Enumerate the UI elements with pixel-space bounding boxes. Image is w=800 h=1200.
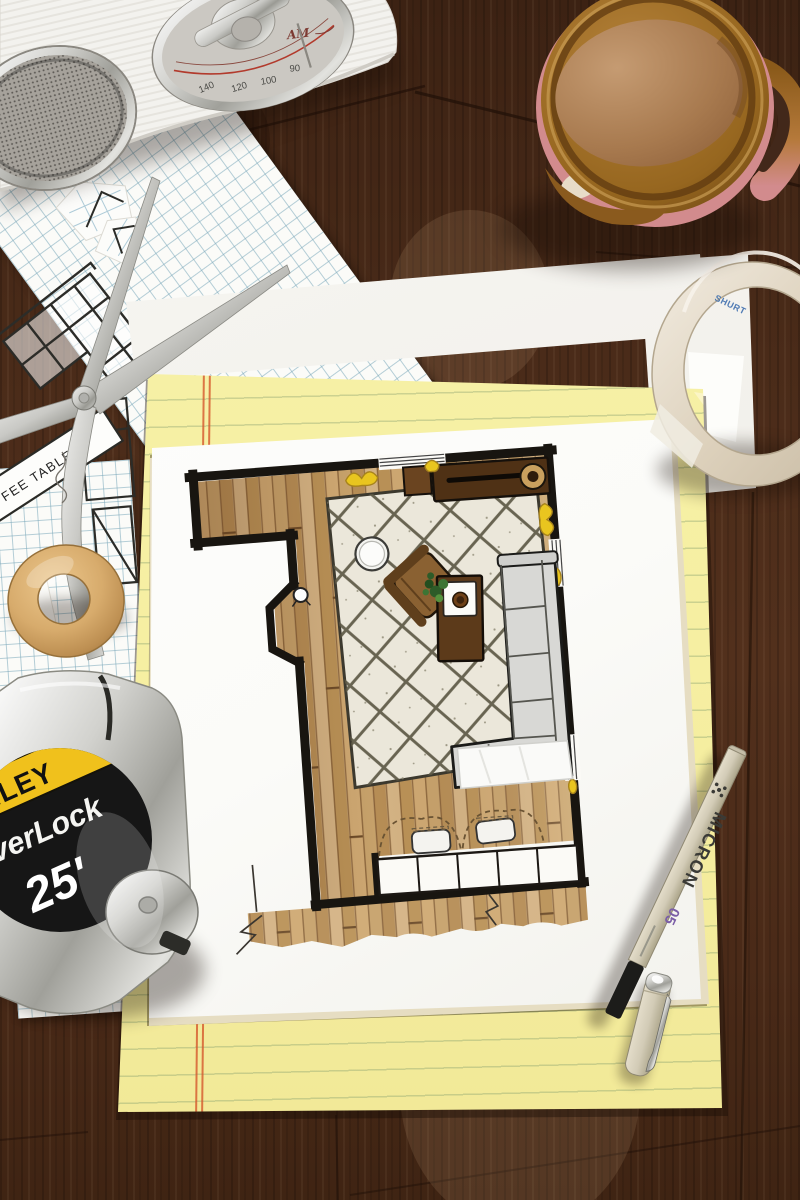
desk-photo-scene: FEE TABLE TO — [0, 0, 800, 1200]
